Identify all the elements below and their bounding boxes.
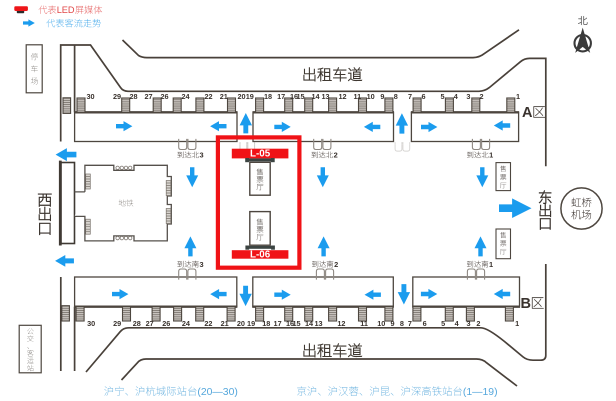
svg-text:1: 1 — [515, 319, 519, 328]
svg-text:13: 13 — [314, 319, 322, 328]
svg-text:22: 22 — [204, 319, 212, 328]
svg-text:(20—30): (20—30) — [197, 387, 237, 398]
svg-text:LED: LED — [57, 5, 75, 15]
svg-text:L-05: L-05 — [250, 149, 271, 160]
svg-text:9: 9 — [390, 319, 394, 328]
svg-text:21: 21 — [221, 319, 229, 328]
svg-text:1: 1 — [489, 151, 493, 160]
svg-text:7: 7 — [408, 92, 412, 101]
svg-text:29: 29 — [113, 319, 121, 328]
svg-text:15: 15 — [296, 92, 304, 101]
svg-text:20: 20 — [237, 92, 245, 101]
svg-text:1: 1 — [516, 92, 520, 101]
svg-text:A: A — [522, 105, 533, 121]
svg-text:18: 18 — [264, 92, 272, 101]
svg-text:1: 1 — [489, 260, 493, 269]
svg-text:19: 19 — [247, 319, 255, 328]
svg-text:30: 30 — [87, 319, 95, 328]
svg-text:2: 2 — [479, 92, 483, 101]
svg-text:2: 2 — [334, 260, 338, 269]
svg-text:15: 15 — [292, 319, 300, 328]
svg-text:12: 12 — [337, 319, 345, 328]
svg-text:14: 14 — [311, 92, 320, 101]
svg-text:3: 3 — [466, 319, 470, 328]
svg-text:8: 8 — [394, 92, 398, 101]
svg-text:3: 3 — [466, 92, 470, 101]
svg-text:B: B — [521, 296, 531, 312]
svg-text:18: 18 — [262, 319, 270, 328]
svg-text:10: 10 — [367, 92, 375, 101]
svg-text:10: 10 — [377, 319, 385, 328]
svg-text:7: 7 — [408, 319, 412, 328]
svg-text:17: 17 — [274, 319, 282, 328]
svg-text:12: 12 — [338, 92, 346, 101]
svg-text:11: 11 — [353, 92, 361, 101]
svg-text:20: 20 — [237, 319, 245, 328]
svg-text:6: 6 — [423, 319, 427, 328]
svg-text:8: 8 — [400, 319, 404, 328]
svg-text:24: 24 — [182, 319, 191, 328]
svg-text:17: 17 — [277, 92, 285, 101]
svg-text:27: 27 — [146, 319, 154, 328]
svg-text:26: 26 — [160, 92, 168, 101]
svg-text:27: 27 — [144, 92, 152, 101]
svg-text:5: 5 — [440, 92, 444, 101]
svg-text:2: 2 — [476, 319, 480, 328]
svg-text:29: 29 — [113, 92, 121, 101]
svg-text:11: 11 — [360, 319, 368, 328]
svg-text:30: 30 — [86, 92, 94, 101]
svg-text:14: 14 — [305, 319, 314, 328]
svg-text:L-06: L-06 — [250, 250, 271, 261]
svg-text:6: 6 — [421, 92, 425, 101]
svg-text:2: 2 — [334, 151, 338, 160]
svg-text:(1—19): (1—19) — [463, 387, 498, 398]
svg-text:22: 22 — [204, 92, 212, 101]
svg-text:28: 28 — [129, 92, 137, 101]
svg-text:21: 21 — [220, 92, 228, 101]
svg-text:24: 24 — [181, 92, 190, 101]
svg-text:3: 3 — [200, 151, 204, 160]
svg-text:3: 3 — [200, 260, 204, 269]
svg-text:26: 26 — [162, 319, 170, 328]
svg-text:5: 5 — [441, 319, 445, 328]
svg-text:13: 13 — [321, 92, 329, 101]
svg-text:19: 19 — [246, 92, 254, 101]
svg-text:28: 28 — [133, 319, 141, 328]
svg-text:9: 9 — [380, 92, 384, 101]
